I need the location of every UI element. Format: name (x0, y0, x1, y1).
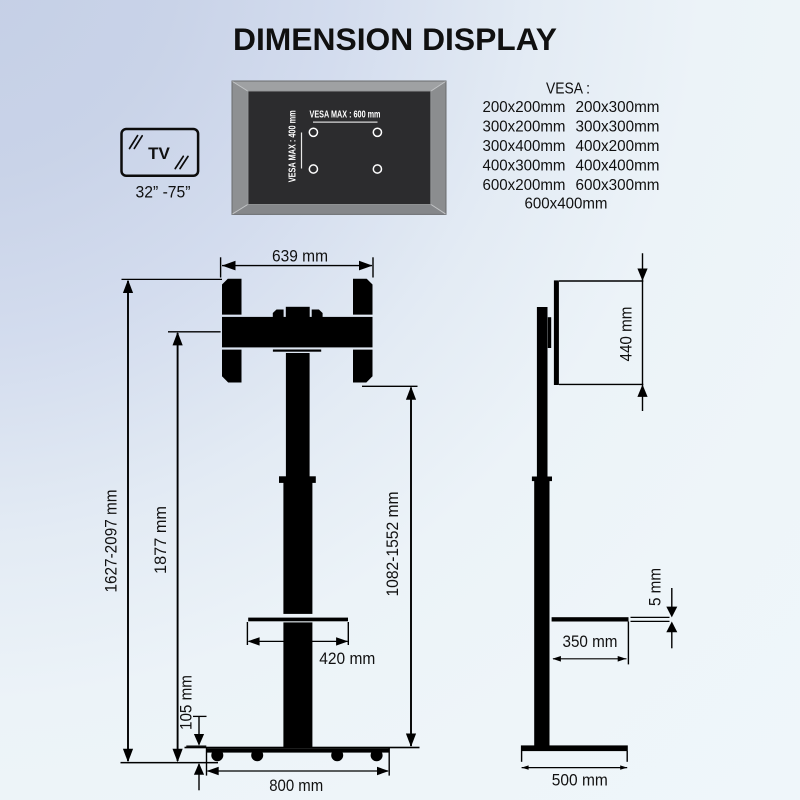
svg-text:5 mm: 5 mm (646, 568, 665, 606)
svg-text:600x300mm: 600x300mm (576, 177, 660, 194)
svg-text:440 mm: 440 mm (617, 307, 636, 362)
svg-text:350 mm: 350 mm (563, 633, 618, 651)
svg-text:300x400mm: 300x400mm (483, 138, 566, 155)
svg-text:DIMENSION DISPLAY: DIMENSION DISPLAY (233, 21, 557, 57)
svg-text:639 mm: 639 mm (272, 248, 328, 266)
svg-text:300x300mm: 300x300mm (576, 119, 660, 136)
svg-text:400x200mm: 400x200mm (576, 138, 660, 155)
svg-text:VESA MAX : 600 mm: VESA MAX : 600 mm (310, 109, 381, 121)
svg-text:500 mm: 500 mm (552, 772, 608, 790)
svg-text:600x200mm: 600x200mm (483, 177, 566, 194)
svg-text:300x200mm: 300x200mm (483, 119, 566, 136)
svg-text:200x300mm: 200x300mm (576, 99, 660, 116)
svg-text:1627-2097 mm: 1627-2097 mm (102, 490, 121, 593)
svg-text:32” -75”: 32” -75” (136, 184, 191, 202)
svg-text:600x400mm: 600x400mm (525, 196, 608, 213)
svg-text:200x200mm: 200x200mm (483, 99, 566, 116)
svg-text:800 mm: 800 mm (269, 776, 323, 795)
svg-text:400x300mm: 400x300mm (483, 158, 566, 175)
svg-text:105 mm: 105 mm (177, 675, 196, 730)
svg-text:420 mm: 420 mm (319, 650, 375, 668)
svg-text:VESA MAX : 400 mm: VESA MAX : 400 mm (287, 110, 299, 182)
svg-text:400x400mm: 400x400mm (576, 158, 660, 175)
svg-text:TV: TV (148, 144, 170, 163)
svg-text:1082-1552 mm: 1082-1552 mm (383, 492, 402, 597)
svg-text:1877 mm: 1877 mm (151, 506, 170, 574)
svg-text:VESA :: VESA : (546, 81, 590, 98)
